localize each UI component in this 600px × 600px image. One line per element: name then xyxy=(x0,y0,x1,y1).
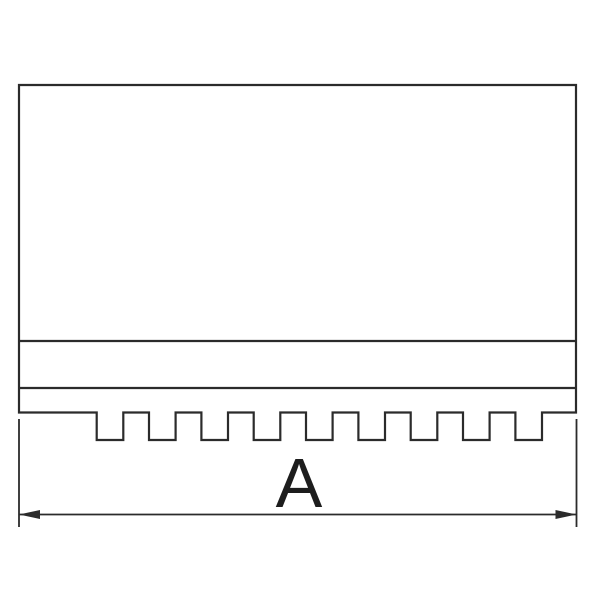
dimension-arrow-left-icon xyxy=(19,510,40,519)
technical-drawing: A xyxy=(0,0,600,600)
drawing-page: A xyxy=(0,0,600,600)
dimension-a-group: A xyxy=(19,419,577,527)
part-outline xyxy=(19,85,576,440)
dimension-label: A xyxy=(276,444,323,522)
dimension-arrow-right-icon xyxy=(556,510,577,519)
